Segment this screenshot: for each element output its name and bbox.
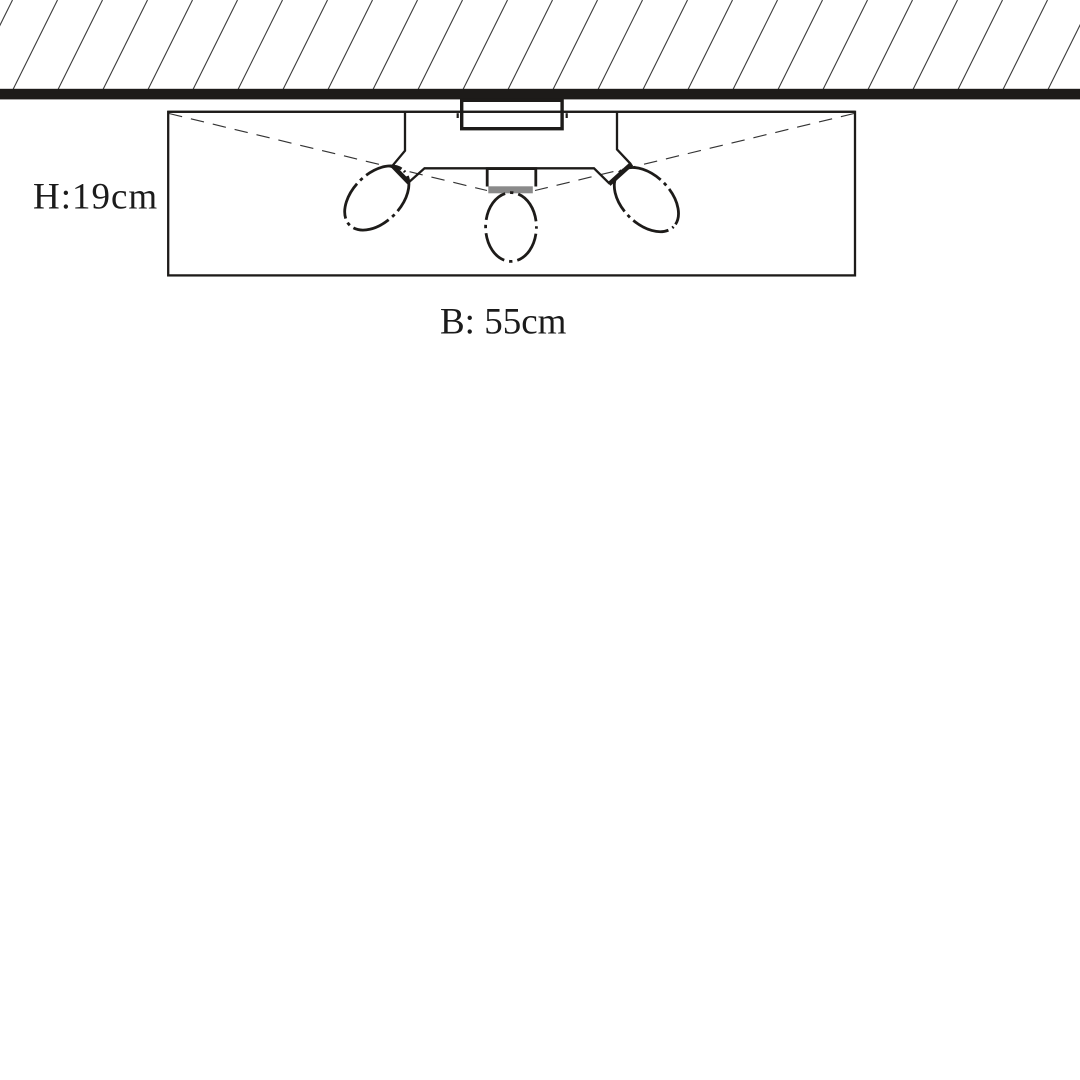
svg-text:B: 55cm: B: 55cm xyxy=(440,302,567,343)
svg-text:H:19cm: H:19cm xyxy=(33,177,158,218)
